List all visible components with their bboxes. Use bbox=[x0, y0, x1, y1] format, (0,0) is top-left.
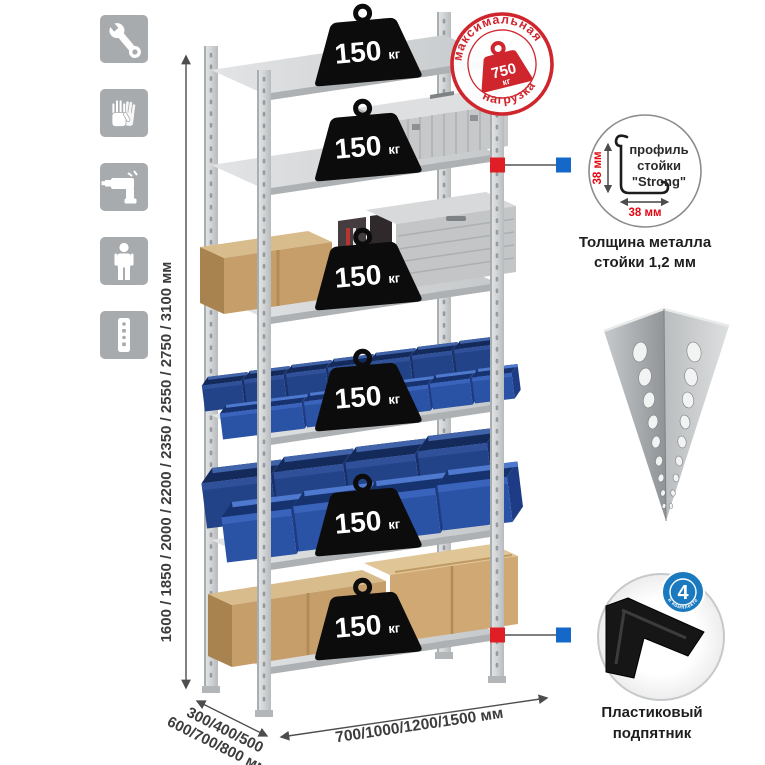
shelf-3: 150 кг bbox=[200, 192, 516, 325]
rack-post-front-right bbox=[488, 36, 506, 683]
blue-marker-square bbox=[556, 158, 571, 173]
foot-caption-2: подпятник bbox=[613, 725, 692, 742]
width-dimension: 700/1000/1200/1500 мм bbox=[281, 698, 547, 746]
svg-text:150: 150 bbox=[333, 609, 382, 644]
plastic-foot-callout: 4 в комплекте bbox=[598, 571, 724, 700]
wrench-icon bbox=[100, 15, 148, 63]
shelving-rack-infographic: 1600 / 1850 / 2000 / 2200 / 2350 / 2550 … bbox=[0, 0, 765, 765]
infographic-canvas: 1600 / 1850 / 2000 / 2200 / 2350 / 2550 … bbox=[0, 0, 765, 765]
profile-callout: 38 мм 38 мм профиль стойки "Strong" bbox=[589, 115, 701, 227]
svg-text:кг: кг bbox=[388, 391, 402, 407]
profile-callout-connector bbox=[490, 158, 571, 173]
person-icon bbox=[100, 237, 148, 285]
feature-icon-column bbox=[100, 15, 148, 359]
profile-vertical-dim: 38 мм bbox=[592, 151, 604, 184]
svg-text:кг: кг bbox=[388, 516, 402, 532]
shelf-2: 150 кг bbox=[211, 90, 508, 196]
profile-label-2: стойки bbox=[637, 158, 681, 173]
svg-text:кг: кг bbox=[388, 270, 402, 286]
svg-text:150: 150 bbox=[333, 380, 382, 415]
height-dimension: 1600 / 1850 / 2000 / 2200 / 2350 / 2550 … bbox=[158, 56, 186, 688]
corner-post-illustration bbox=[604, 309, 729, 521]
height-dimension-label: 1600 / 1850 / 2000 / 2200 / 2350 / 2550 … bbox=[158, 262, 175, 643]
profile-caption-1: Толщина металла bbox=[579, 234, 712, 251]
rack-post-front-left bbox=[255, 70, 273, 717]
red-marker-square bbox=[490, 158, 505, 173]
quantity-badge: 4 в комплекте bbox=[662, 571, 704, 613]
width-dimension-label: 700/1000/1200/1500 мм bbox=[334, 705, 504, 747]
foot-caption-1: Пластиковый bbox=[601, 704, 702, 721]
svg-text:кг: кг bbox=[388, 620, 402, 636]
svg-text:150: 150 bbox=[333, 505, 382, 540]
svg-text:150: 150 bbox=[333, 35, 382, 70]
shelf-4: 150 кг bbox=[201, 336, 522, 446]
shelf-6: 150 кг bbox=[208, 544, 518, 675]
profile-label-3: "Strong" bbox=[632, 174, 686, 189]
blue-marker-square bbox=[556, 628, 571, 643]
profile-horizontal-dim: 38 мм bbox=[628, 207, 661, 219]
svg-text:150: 150 bbox=[333, 130, 382, 165]
profile-caption-2: стойки 1,2 мм bbox=[594, 254, 696, 271]
work-gloves-icon bbox=[100, 89, 148, 137]
drill-icon bbox=[100, 163, 148, 211]
upright-profile-icon bbox=[100, 311, 148, 359]
foot-callout-connector bbox=[490, 628, 571, 643]
svg-text:150: 150 bbox=[333, 259, 382, 294]
profile-label-1: профиль bbox=[629, 142, 688, 157]
svg-text:кг: кг bbox=[388, 141, 402, 157]
shelf-load-weight: 150 кг bbox=[309, 2, 422, 87]
badge-value: 4 bbox=[677, 582, 689, 604]
svg-text:кг: кг bbox=[388, 46, 402, 62]
red-marker-square bbox=[490, 628, 505, 643]
